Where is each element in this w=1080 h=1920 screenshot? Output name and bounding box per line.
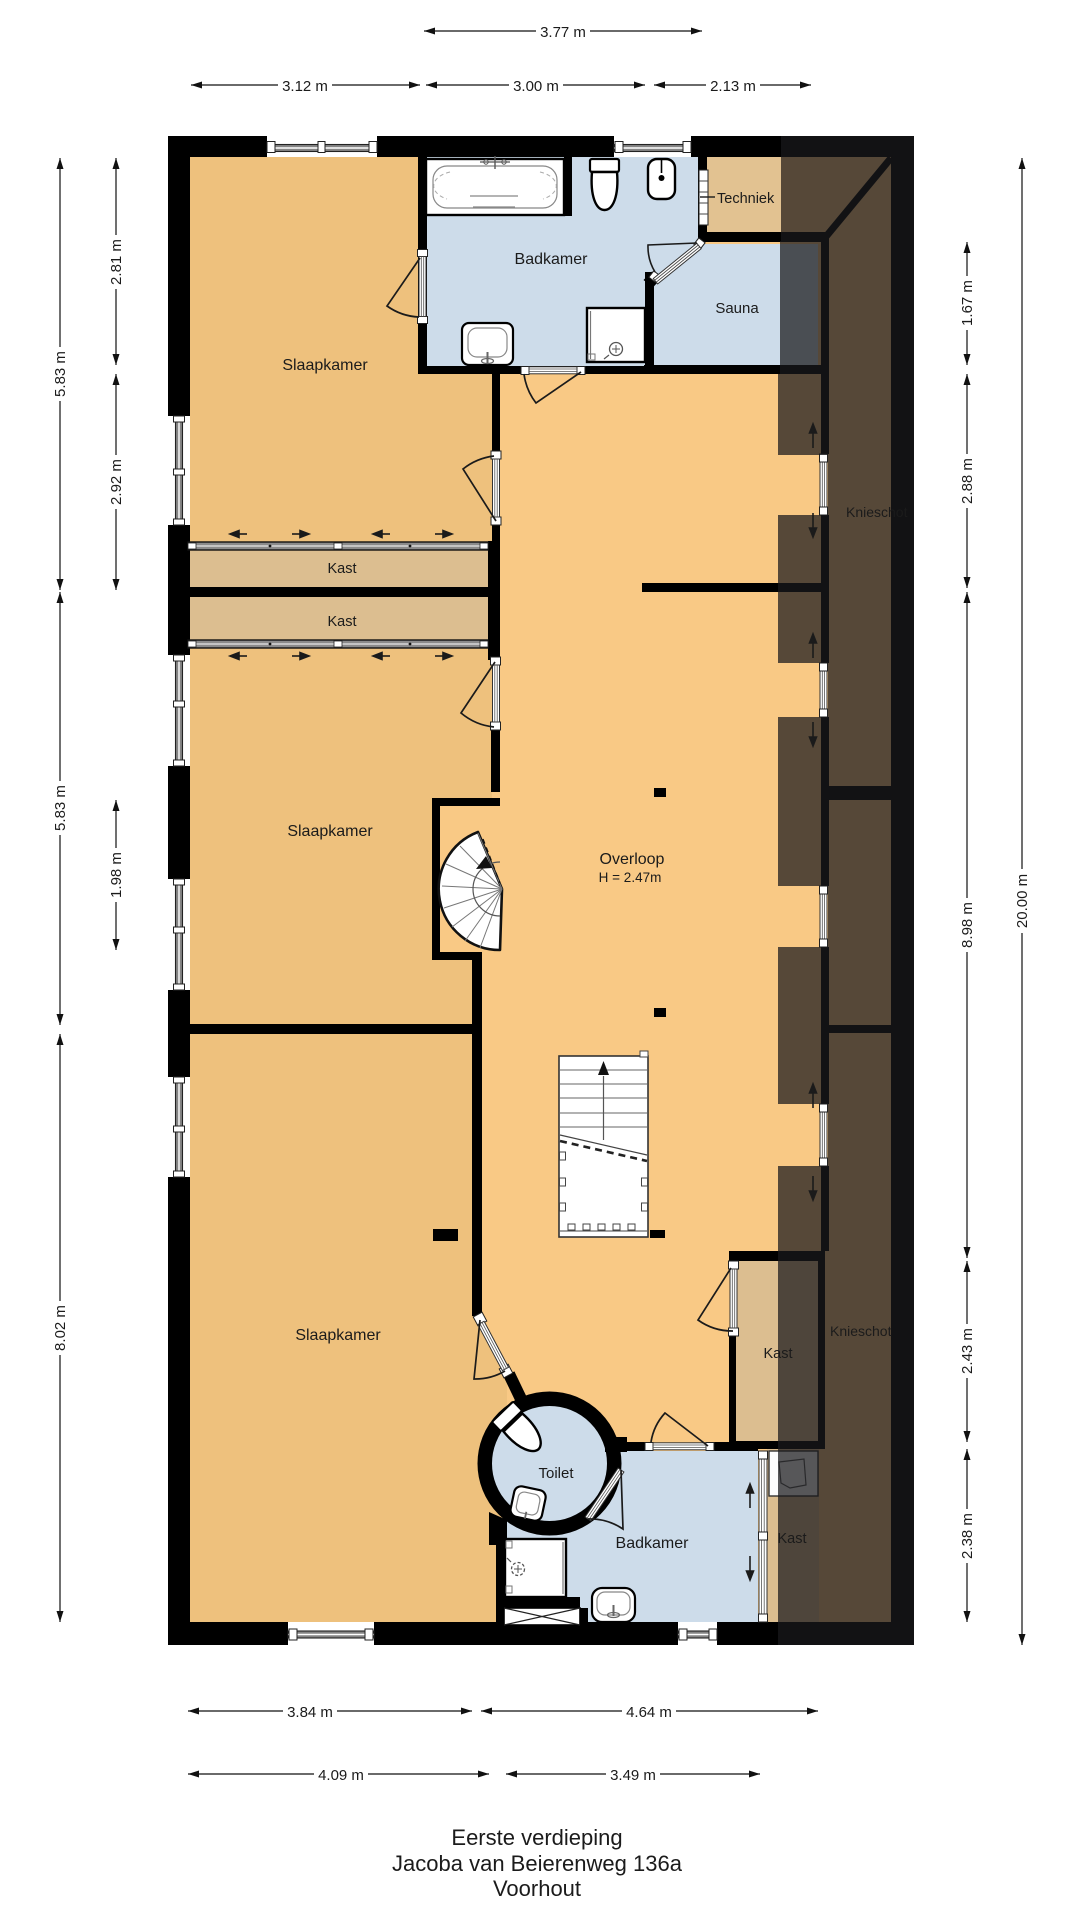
svg-text:Knieschot: Knieschot xyxy=(830,1323,892,1339)
svg-text:Badkamer: Badkamer xyxy=(616,1535,690,1552)
svg-text:Kast: Kast xyxy=(327,614,356,630)
svg-text:4.09 m: 4.09 m xyxy=(318,1767,364,1784)
svg-text:2.88 m: 2.88 m xyxy=(959,458,976,504)
svg-text:Overloop: Overloop xyxy=(600,851,665,868)
svg-text:8.98 m: 8.98 m xyxy=(959,902,976,948)
svg-text:1.98 m: 1.98 m xyxy=(108,852,125,898)
svg-text:5.83 m: 5.83 m xyxy=(52,351,69,397)
svg-text:3.00 m: 3.00 m xyxy=(513,78,559,95)
svg-text:8.02 m: 8.02 m xyxy=(52,1305,69,1351)
svg-text:Jacoba van Beierenweg 136a: Jacoba van Beierenweg 136a xyxy=(392,1851,683,1876)
svg-text:5.83 m: 5.83 m xyxy=(52,785,69,831)
svg-text:4.64 m: 4.64 m xyxy=(626,1704,672,1721)
svg-text:H = 2.47m: H = 2.47m xyxy=(599,870,662,885)
svg-text:Badkamer: Badkamer xyxy=(515,251,589,268)
svg-text:Techniek: Techniek xyxy=(717,191,775,207)
svg-text:Eerste verdieping: Eerste verdieping xyxy=(451,1825,622,1850)
svg-text:2.92 m: 2.92 m xyxy=(108,459,125,505)
svg-text:3.84 m: 3.84 m xyxy=(287,1704,333,1721)
svg-text:Kast: Kast xyxy=(777,1531,806,1547)
svg-text:Slaapkamer: Slaapkamer xyxy=(287,823,373,840)
svg-text:2.13 m: 2.13 m xyxy=(710,78,756,95)
svg-text:3.12 m: 3.12 m xyxy=(282,78,328,95)
svg-text:2.38 m: 2.38 m xyxy=(959,1513,976,1559)
svg-text:Toilet: Toilet xyxy=(538,1465,574,1482)
svg-text:20.00 m: 20.00 m xyxy=(1014,874,1031,928)
svg-text:Sauna: Sauna xyxy=(715,300,759,317)
svg-text:1.67 m: 1.67 m xyxy=(959,280,976,326)
svg-text:3.49 m: 3.49 m xyxy=(610,1767,656,1784)
svg-text:Slaapkamer: Slaapkamer xyxy=(295,1327,381,1344)
svg-text:Slaapkamer: Slaapkamer xyxy=(282,357,368,374)
svg-text:Knieschot: Knieschot xyxy=(846,504,908,520)
svg-text:Voorhout: Voorhout xyxy=(493,1876,581,1901)
svg-text:2.43 m: 2.43 m xyxy=(959,1328,976,1374)
svg-text:2.81 m: 2.81 m xyxy=(108,239,125,285)
svg-text:Kast: Kast xyxy=(327,561,356,577)
svg-text:Kast: Kast xyxy=(763,1346,792,1362)
svg-text:3.77 m: 3.77 m xyxy=(540,24,586,41)
